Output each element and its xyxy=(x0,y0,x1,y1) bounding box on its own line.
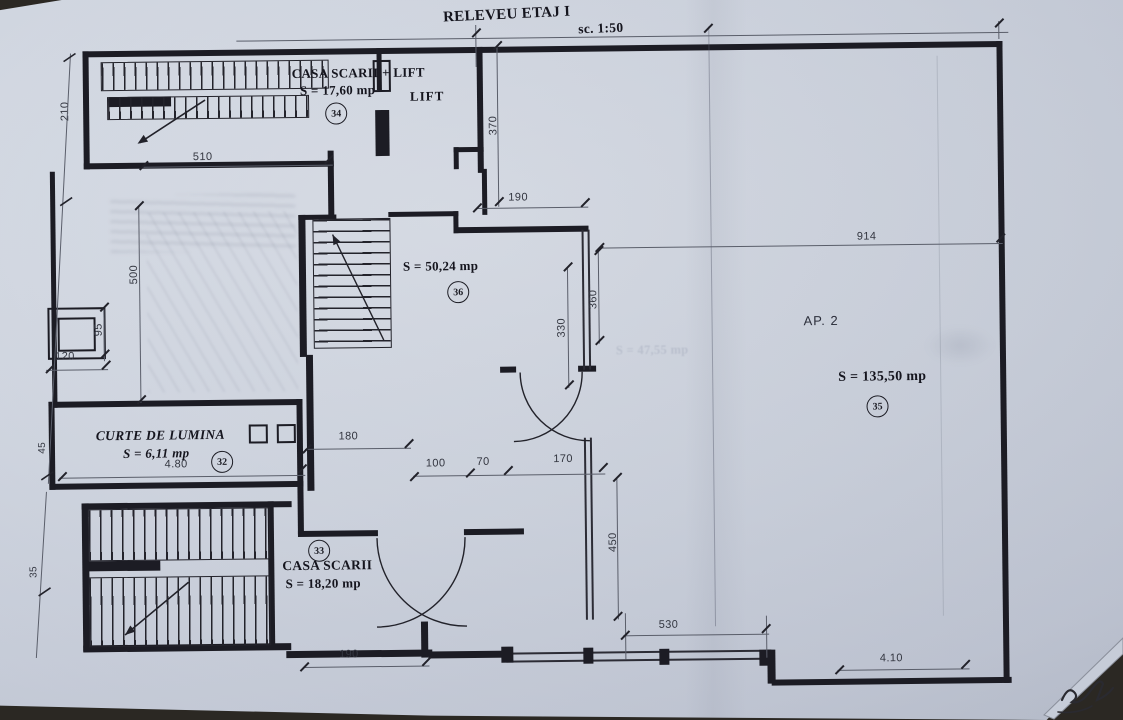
photo-artifacts xyxy=(0,0,1123,720)
scanned-floor-plan-photo: RELEVEU ETAJ I sc. 1:50 S = 47,55 mp xyxy=(0,0,1123,720)
paper-curl xyxy=(1044,638,1123,719)
